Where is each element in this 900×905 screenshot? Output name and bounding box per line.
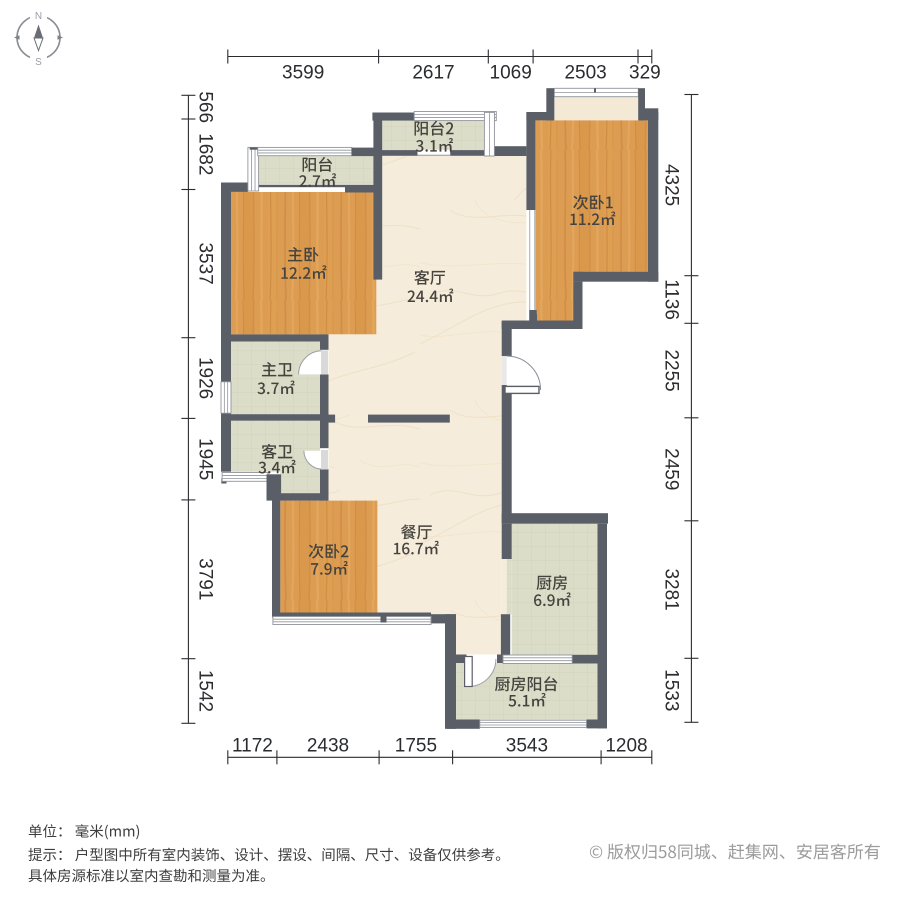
svg-text:1682: 1682 bbox=[195, 133, 216, 175]
svg-text:1926: 1926 bbox=[195, 357, 216, 399]
svg-text:1542: 1542 bbox=[195, 670, 216, 712]
svg-text:566: 566 bbox=[195, 91, 216, 123]
svg-text:1208: 1208 bbox=[605, 736, 647, 757]
svg-text:1755: 1755 bbox=[395, 736, 437, 757]
svg-text:3537: 3537 bbox=[195, 242, 216, 284]
svg-text:1069: 1069 bbox=[490, 63, 532, 84]
svg-text:4325: 4325 bbox=[661, 164, 682, 206]
svg-text:1945: 1945 bbox=[195, 438, 216, 480]
svg-text:2503: 2503 bbox=[564, 63, 606, 84]
svg-text:3281: 3281 bbox=[661, 568, 682, 610]
svg-text:329: 329 bbox=[629, 63, 661, 84]
svg-text:1533: 1533 bbox=[661, 669, 682, 711]
svg-text:3599: 3599 bbox=[282, 63, 324, 84]
svg-text:1172: 1172 bbox=[232, 736, 273, 757]
svg-text:3791: 3791 bbox=[195, 558, 216, 600]
svg-text:2255: 2255 bbox=[661, 349, 682, 391]
svg-text:2617: 2617 bbox=[412, 63, 454, 84]
svg-text:3543: 3543 bbox=[506, 736, 548, 757]
svg-text:2459: 2459 bbox=[661, 448, 682, 490]
svg-text:N: N bbox=[35, 11, 42, 22]
svg-text:2438: 2438 bbox=[307, 736, 349, 757]
svg-text:S: S bbox=[35, 57, 42, 68]
svg-text:1136: 1136 bbox=[661, 279, 682, 320]
